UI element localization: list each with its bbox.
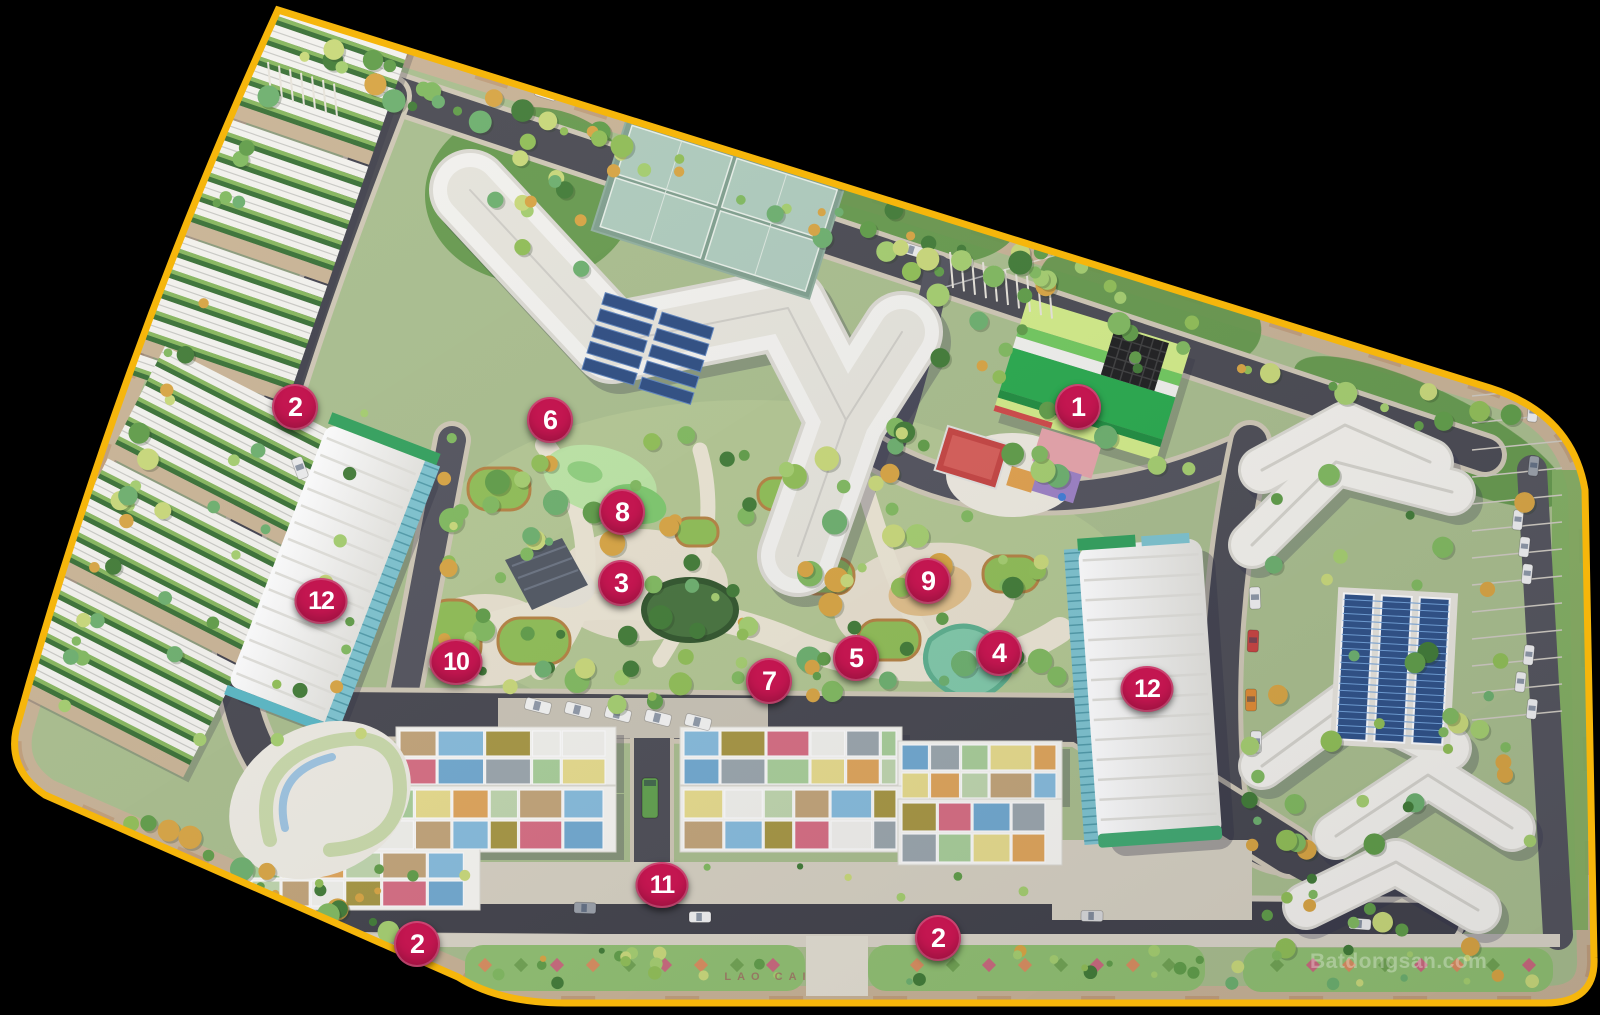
- site-interior: [0, 0, 1600, 1015]
- map-marker-6-7[interactable]: 6: [527, 397, 573, 443]
- watermark: Batdongsan.com: [1310, 950, 1487, 974]
- map-marker-2-2[interactable]: 2: [394, 921, 440, 967]
- masterplan-canvas: [0, 0, 1600, 1015]
- map-marker-10-11[interactable]: 10: [430, 639, 483, 685]
- map-marker-7-8[interactable]: 7: [746, 658, 792, 704]
- map-marker-5-6[interactable]: 5: [833, 635, 879, 681]
- median-flower-text: LAO CAI: [724, 971, 811, 983]
- map-marker-8-9[interactable]: 8: [599, 489, 645, 535]
- map-marker-1-0[interactable]: 1: [1055, 384, 1101, 430]
- light-overlay: [0, 0, 1600, 1015]
- map-marker-2-3[interactable]: 2: [915, 915, 961, 961]
- map-marker-11-12[interactable]: 11: [636, 862, 689, 908]
- masterplan-image: 1222345678910111212 Batdongsan.com LAO C…: [0, 0, 1600, 1015]
- map-marker-12-14[interactable]: 12: [1121, 666, 1174, 712]
- map-marker-2-1[interactable]: 2: [272, 384, 318, 430]
- map-marker-9-10[interactable]: 9: [905, 558, 951, 604]
- map-marker-3-4[interactable]: 3: [598, 560, 644, 606]
- map-marker-12-13[interactable]: 12: [295, 578, 348, 624]
- map-marker-4-5[interactable]: 4: [976, 630, 1022, 676]
